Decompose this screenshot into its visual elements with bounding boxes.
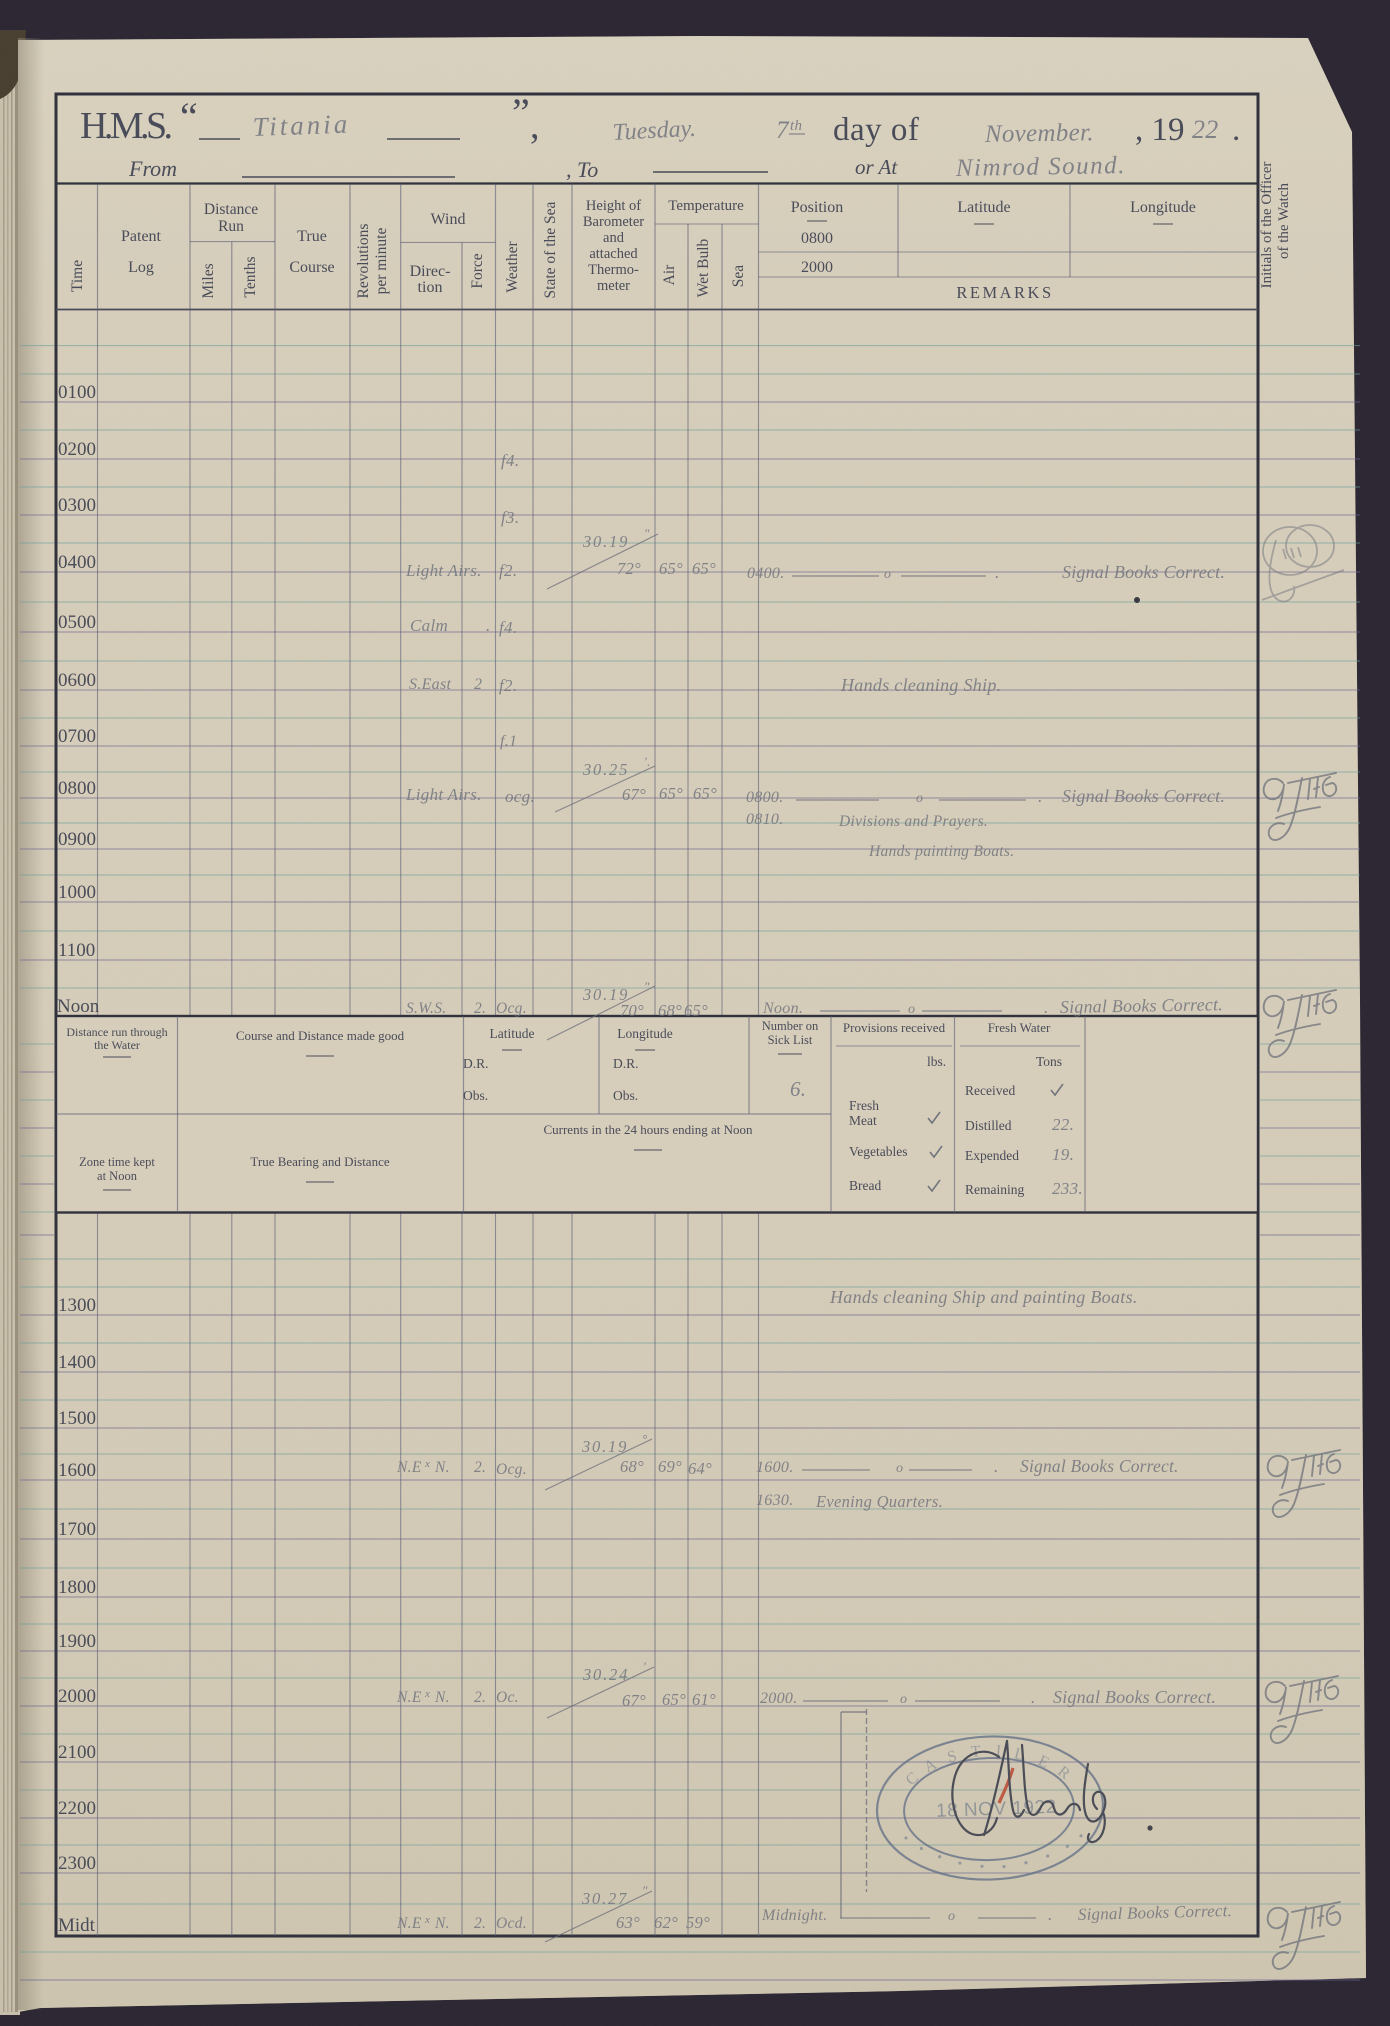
svg-text:Log: Log bbox=[128, 259, 154, 276]
svg-text:Meat: Meat bbox=[849, 1113, 877, 1128]
svg-text:′.: ′. bbox=[644, 754, 651, 769]
svg-text:Signal Books Correct.: Signal Books Correct. bbox=[1078, 1901, 1233, 1924]
svg-text:2.: 2. bbox=[474, 1915, 486, 1932]
svg-text:Light Airs.: Light Airs. bbox=[405, 785, 482, 804]
svg-text:2100: 2100 bbox=[58, 1742, 96, 1763]
svg-text:Signal Books Correct.: Signal Books Correct. bbox=[1062, 562, 1225, 582]
svg-text:Distance run through: Distance run through bbox=[66, 1025, 167, 1039]
svg-text:Tenths: Tenths bbox=[242, 256, 259, 297]
svg-text:0400.: 0400. bbox=[747, 565, 785, 582]
svg-text:Ocg.: Ocg. bbox=[496, 1000, 527, 1017]
svg-text:Signal Books Correct.: Signal Books Correct. bbox=[1062, 786, 1225, 806]
svg-text:From: From bbox=[128, 156, 177, 181]
svg-text:D.R.: D.R. bbox=[463, 1056, 489, 1071]
svg-text:2000: 2000 bbox=[801, 259, 833, 276]
svg-text:f.1: f.1 bbox=[500, 733, 517, 750]
svg-text:.: . bbox=[1048, 1905, 1053, 1924]
svg-text:Sick List: Sick List bbox=[768, 1033, 813, 1047]
svg-text:Revolutions: Revolutions bbox=[355, 224, 372, 299]
svg-text:f3.: f3. bbox=[501, 508, 519, 527]
svg-text:69°: 69° bbox=[658, 1457, 682, 1476]
svg-text:Obs.: Obs. bbox=[463, 1088, 488, 1103]
svg-text:70°: 70° bbox=[620, 1001, 644, 1020]
svg-text:Oc.: Oc. bbox=[496, 1689, 519, 1706]
svg-text:61°: 61° bbox=[692, 1690, 716, 1709]
svg-text:tion: tion bbox=[418, 279, 443, 296]
svg-text:Calm: Calm bbox=[410, 616, 448, 635]
svg-text:Obs.: Obs. bbox=[613, 1088, 638, 1103]
svg-text:.: . bbox=[486, 616, 491, 635]
svg-text:Height of: Height of bbox=[586, 198, 641, 214]
svg-text:True: True bbox=[297, 228, 327, 245]
svg-text:0800: 0800 bbox=[801, 230, 833, 247]
svg-text:REMARKS: REMARKS bbox=[956, 283, 1053, 302]
svg-text:65°: 65° bbox=[693, 784, 717, 803]
svg-text:day of: day of bbox=[833, 112, 919, 148]
svg-text:62°: 62° bbox=[654, 1913, 678, 1932]
svg-text:, To: , To bbox=[566, 157, 598, 182]
svg-text:30.24: 30.24 bbox=[582, 1665, 629, 1684]
svg-text:22.: 22. bbox=[1052, 1115, 1074, 1134]
svg-text:Thermo-: Thermo- bbox=[588, 262, 639, 278]
svg-text:Hands cleaning Ship.: Hands cleaning Ship. bbox=[840, 675, 1002, 695]
svg-text:68°: 68° bbox=[620, 1457, 644, 1476]
svg-text:f4.: f4. bbox=[501, 451, 519, 470]
svg-text:, 19: , 19 bbox=[1135, 112, 1185, 148]
svg-text:Light Airs.: Light Airs. bbox=[405, 561, 482, 580]
svg-text:Evening Quarters.: Evening Quarters. bbox=[815, 1492, 943, 1511]
svg-text:Currents in the 24 hours endin: Currents in the 24 hours ending at Noon bbox=[543, 1122, 753, 1137]
svg-text:ocg.: ocg. bbox=[505, 787, 535, 806]
svg-text:Barometer: Barometer bbox=[583, 214, 644, 230]
svg-text:Nimrod Sound.: Nimrod Sound. bbox=[955, 152, 1126, 182]
svg-text:Noon: Noon bbox=[57, 996, 100, 1017]
svg-text:Provisions received: Provisions received bbox=[843, 1020, 946, 1035]
svg-text:0800: 0800 bbox=[58, 778, 96, 799]
svg-text:N.E: N.E bbox=[396, 1689, 422, 1706]
svg-text:Noon.: Noon. bbox=[762, 1000, 803, 1017]
svg-text:f2.: f2. bbox=[499, 676, 517, 695]
svg-text:.: . bbox=[995, 563, 1000, 582]
svg-text:2: 2 bbox=[474, 676, 482, 693]
svg-text:Expended: Expended bbox=[965, 1148, 1019, 1163]
svg-text:59°: 59° bbox=[686, 1913, 710, 1932]
svg-text:November.: November. bbox=[984, 119, 1094, 148]
svg-text:Sea: Sea bbox=[730, 265, 747, 288]
svg-text:H.M.S.: H.M.S. bbox=[80, 105, 173, 147]
svg-text:Zone time kept: Zone time kept bbox=[79, 1155, 155, 1169]
svg-text:65°: 65° bbox=[692, 559, 716, 578]
svg-text:o: o bbox=[884, 567, 891, 582]
svg-text:attached: attached bbox=[589, 246, 638, 262]
svg-text:Direc-: Direc- bbox=[410, 263, 451, 280]
svg-text:and: and bbox=[603, 230, 625, 246]
svg-text:Initials of the Officer: Initials of the Officer bbox=[1259, 162, 1275, 289]
svg-text:the Water: the Water bbox=[94, 1038, 140, 1052]
svg-text:30.25: 30.25 bbox=[582, 760, 629, 779]
svg-text:”: ” bbox=[512, 90, 530, 135]
svg-text:7: 7 bbox=[776, 117, 790, 144]
svg-text:Weather: Weather bbox=[504, 241, 521, 293]
svg-text:Longitude: Longitude bbox=[617, 1026, 673, 1041]
svg-text:.: . bbox=[994, 1457, 999, 1476]
svg-text:67°: 67° bbox=[622, 785, 646, 804]
svg-text:Longitude: Longitude bbox=[1130, 199, 1196, 216]
svg-text:65°: 65° bbox=[659, 784, 683, 803]
svg-text:o: o bbox=[900, 1692, 907, 1707]
svg-text:72°: 72° bbox=[617, 559, 641, 578]
svg-text:1500: 1500 bbox=[58, 1408, 96, 1429]
svg-text:S.W.S.: S.W.S. bbox=[406, 1000, 446, 1017]
svg-text:64°: 64° bbox=[688, 1459, 712, 1478]
svg-text:1600.: 1600. bbox=[756, 1459, 794, 1476]
svg-text:63°: 63° bbox=[616, 1913, 640, 1932]
svg-text:x: x bbox=[424, 1914, 430, 1926]
svg-text:lbs.: lbs. bbox=[927, 1054, 946, 1069]
svg-text:th: th bbox=[790, 118, 802, 134]
svg-text:Course: Course bbox=[289, 259, 334, 276]
svg-text:0810.: 0810. bbox=[746, 811, 784, 828]
svg-text:2000: 2000 bbox=[58, 1686, 96, 1707]
svg-text:Hands cleaning Ship and painti: Hands cleaning Ship and painting Boats. bbox=[829, 1287, 1138, 1307]
svg-text:.: . bbox=[1038, 787, 1043, 806]
svg-text:Force: Force bbox=[469, 253, 486, 288]
svg-text:Patent: Patent bbox=[121, 228, 162, 245]
svg-text:Received: Received bbox=[965, 1083, 1015, 1098]
svg-text:2200: 2200 bbox=[58, 1798, 96, 1819]
svg-text:Distilled: Distilled bbox=[965, 1118, 1012, 1133]
svg-text:1000: 1000 bbox=[58, 882, 96, 903]
svg-text:N.: N. bbox=[434, 1915, 450, 1932]
svg-text:Number on: Number on bbox=[762, 1019, 819, 1033]
svg-text:Run: Run bbox=[218, 218, 244, 235]
svg-text:S.East: S.East bbox=[409, 676, 451, 693]
svg-text:Bread: Bread bbox=[849, 1178, 881, 1193]
svg-text:Tuesday.: Tuesday. bbox=[612, 116, 697, 146]
svg-text:,: , bbox=[530, 105, 540, 147]
svg-text:1700: 1700 bbox=[58, 1519, 96, 1540]
svg-text:N.: N. bbox=[434, 1689, 450, 1706]
svg-text:2.: 2. bbox=[474, 1000, 486, 1017]
svg-text:1800: 1800 bbox=[58, 1577, 96, 1598]
svg-text:30.19: 30.19 bbox=[582, 532, 629, 551]
svg-text:2.: 2. bbox=[474, 1459, 486, 1476]
svg-text:1100: 1100 bbox=[58, 940, 95, 961]
svg-text:o: o bbox=[948, 1909, 955, 1924]
svg-text:Latitude: Latitude bbox=[957, 199, 1010, 216]
svg-text:1600: 1600 bbox=[58, 1460, 96, 1481]
svg-text:per minute: per minute bbox=[373, 228, 390, 295]
svg-text:Remaining: Remaining bbox=[965, 1182, 1024, 1197]
svg-text:68°: 68° bbox=[658, 1001, 682, 1020]
svg-text:Midt: Midt bbox=[58, 1915, 96, 1936]
svg-text:Fresh Water: Fresh Water bbox=[988, 1020, 1051, 1035]
svg-text:N.E: N.E bbox=[396, 1459, 422, 1476]
svg-text:67°: 67° bbox=[622, 1691, 646, 1710]
svg-text:6.: 6. bbox=[790, 1077, 806, 1101]
svg-text:Midnight.: Midnight. bbox=[761, 1907, 827, 1924]
svg-text:meter: meter bbox=[597, 278, 630, 294]
svg-text:State of the Sea: State of the Sea bbox=[542, 201, 559, 298]
svg-text:233.: 233. bbox=[1052, 1179, 1083, 1198]
svg-text:o: o bbox=[896, 1461, 903, 1476]
svg-text:1400: 1400 bbox=[58, 1352, 96, 1373]
svg-text:Signal Books Correct.: Signal Books Correct. bbox=[1020, 1456, 1179, 1476]
svg-text:.: . bbox=[1031, 1688, 1036, 1707]
svg-text:Course and Distance made good: Course and Distance made good bbox=[236, 1028, 405, 1043]
svg-text:Ocd.: Ocd. bbox=[496, 1915, 527, 1932]
svg-text:0700: 0700 bbox=[58, 726, 96, 747]
svg-text:Signal Books Correct.: Signal Books Correct. bbox=[1060, 994, 1223, 1017]
svg-text:x: x bbox=[424, 1688, 430, 1700]
svg-text:Signal Books Correct.: Signal Books Correct. bbox=[1053, 1687, 1216, 1707]
svg-text:1300: 1300 bbox=[58, 1295, 96, 1316]
svg-text:N.: N. bbox=[434, 1459, 450, 1476]
svg-text:“: “ bbox=[180, 94, 198, 139]
svg-text:0900: 0900 bbox=[58, 829, 96, 850]
svg-text:Miles: Miles bbox=[200, 263, 217, 298]
svg-text:Position: Position bbox=[791, 199, 843, 216]
svg-text:2000.: 2000. bbox=[760, 1690, 798, 1707]
svg-text:0500: 0500 bbox=[58, 612, 96, 633]
svg-text:2300: 2300 bbox=[58, 1853, 96, 1874]
svg-text:0200: 0200 bbox=[58, 439, 96, 460]
svg-text:65°: 65° bbox=[662, 1690, 686, 1709]
svg-text:Time: Time bbox=[69, 260, 86, 292]
svg-text:Vegetables: Vegetables bbox=[849, 1144, 907, 1159]
svg-text:1630.: 1630. bbox=[756, 1492, 794, 1509]
svg-text:65°: 65° bbox=[684, 1001, 708, 1020]
svg-text:.: . bbox=[1232, 112, 1240, 148]
svg-text:o: o bbox=[908, 1002, 915, 1017]
svg-text:0100: 0100 bbox=[58, 382, 96, 403]
svg-text:0800.: 0800. bbox=[746, 789, 784, 806]
svg-text:0600: 0600 bbox=[58, 670, 96, 691]
svg-text:N.E: N.E bbox=[396, 1915, 422, 1932]
svg-text:.: . bbox=[1044, 998, 1049, 1017]
svg-text:Ocg.: Ocg. bbox=[496, 1461, 527, 1478]
svg-text:D.R.: D.R. bbox=[613, 1056, 639, 1071]
svg-text:Air: Air bbox=[661, 264, 678, 286]
svg-text:Hands painting Boats.: Hands painting Boats. bbox=[868, 843, 1014, 860]
svg-text:1900: 1900 bbox=[58, 1631, 96, 1652]
svg-text:2.: 2. bbox=[474, 1689, 486, 1706]
svg-text:o: o bbox=[916, 791, 923, 806]
svg-text:at Noon: at Noon bbox=[97, 1169, 138, 1183]
svg-text:″: ″ bbox=[644, 979, 650, 994]
svg-text:Latitude: Latitude bbox=[490, 1026, 535, 1041]
svg-text:0300: 0300 bbox=[58, 495, 96, 516]
svg-text:f2.: f2. bbox=[499, 561, 517, 580]
svg-text:Tons: Tons bbox=[1036, 1054, 1062, 1069]
svg-text:Temperature: Temperature bbox=[668, 198, 744, 214]
svg-text:Distance: Distance bbox=[204, 201, 258, 218]
svg-text:0400: 0400 bbox=[58, 552, 96, 573]
svg-text:True Bearing and Distance: True Bearing and Distance bbox=[250, 1154, 389, 1169]
svg-text:of the Watch: of the Watch bbox=[1276, 183, 1292, 259]
svg-text:x: x bbox=[424, 1458, 430, 1470]
svg-text:19.: 19. bbox=[1052, 1145, 1074, 1164]
svg-text:Divisions and Prayers.: Divisions and Prayers. bbox=[838, 813, 988, 830]
svg-text:f4.: f4. bbox=[499, 618, 517, 637]
svg-text:or At: or At bbox=[855, 155, 898, 179]
svg-text:Wind: Wind bbox=[431, 211, 466, 228]
svg-text:Fresh: Fresh bbox=[849, 1098, 879, 1113]
svg-text:Titania: Titania bbox=[252, 109, 351, 142]
svg-text:Wet Bulb: Wet Bulb bbox=[695, 238, 712, 297]
svg-text:65°: 65° bbox=[659, 559, 683, 578]
svg-text:22: 22 bbox=[1192, 115, 1219, 144]
